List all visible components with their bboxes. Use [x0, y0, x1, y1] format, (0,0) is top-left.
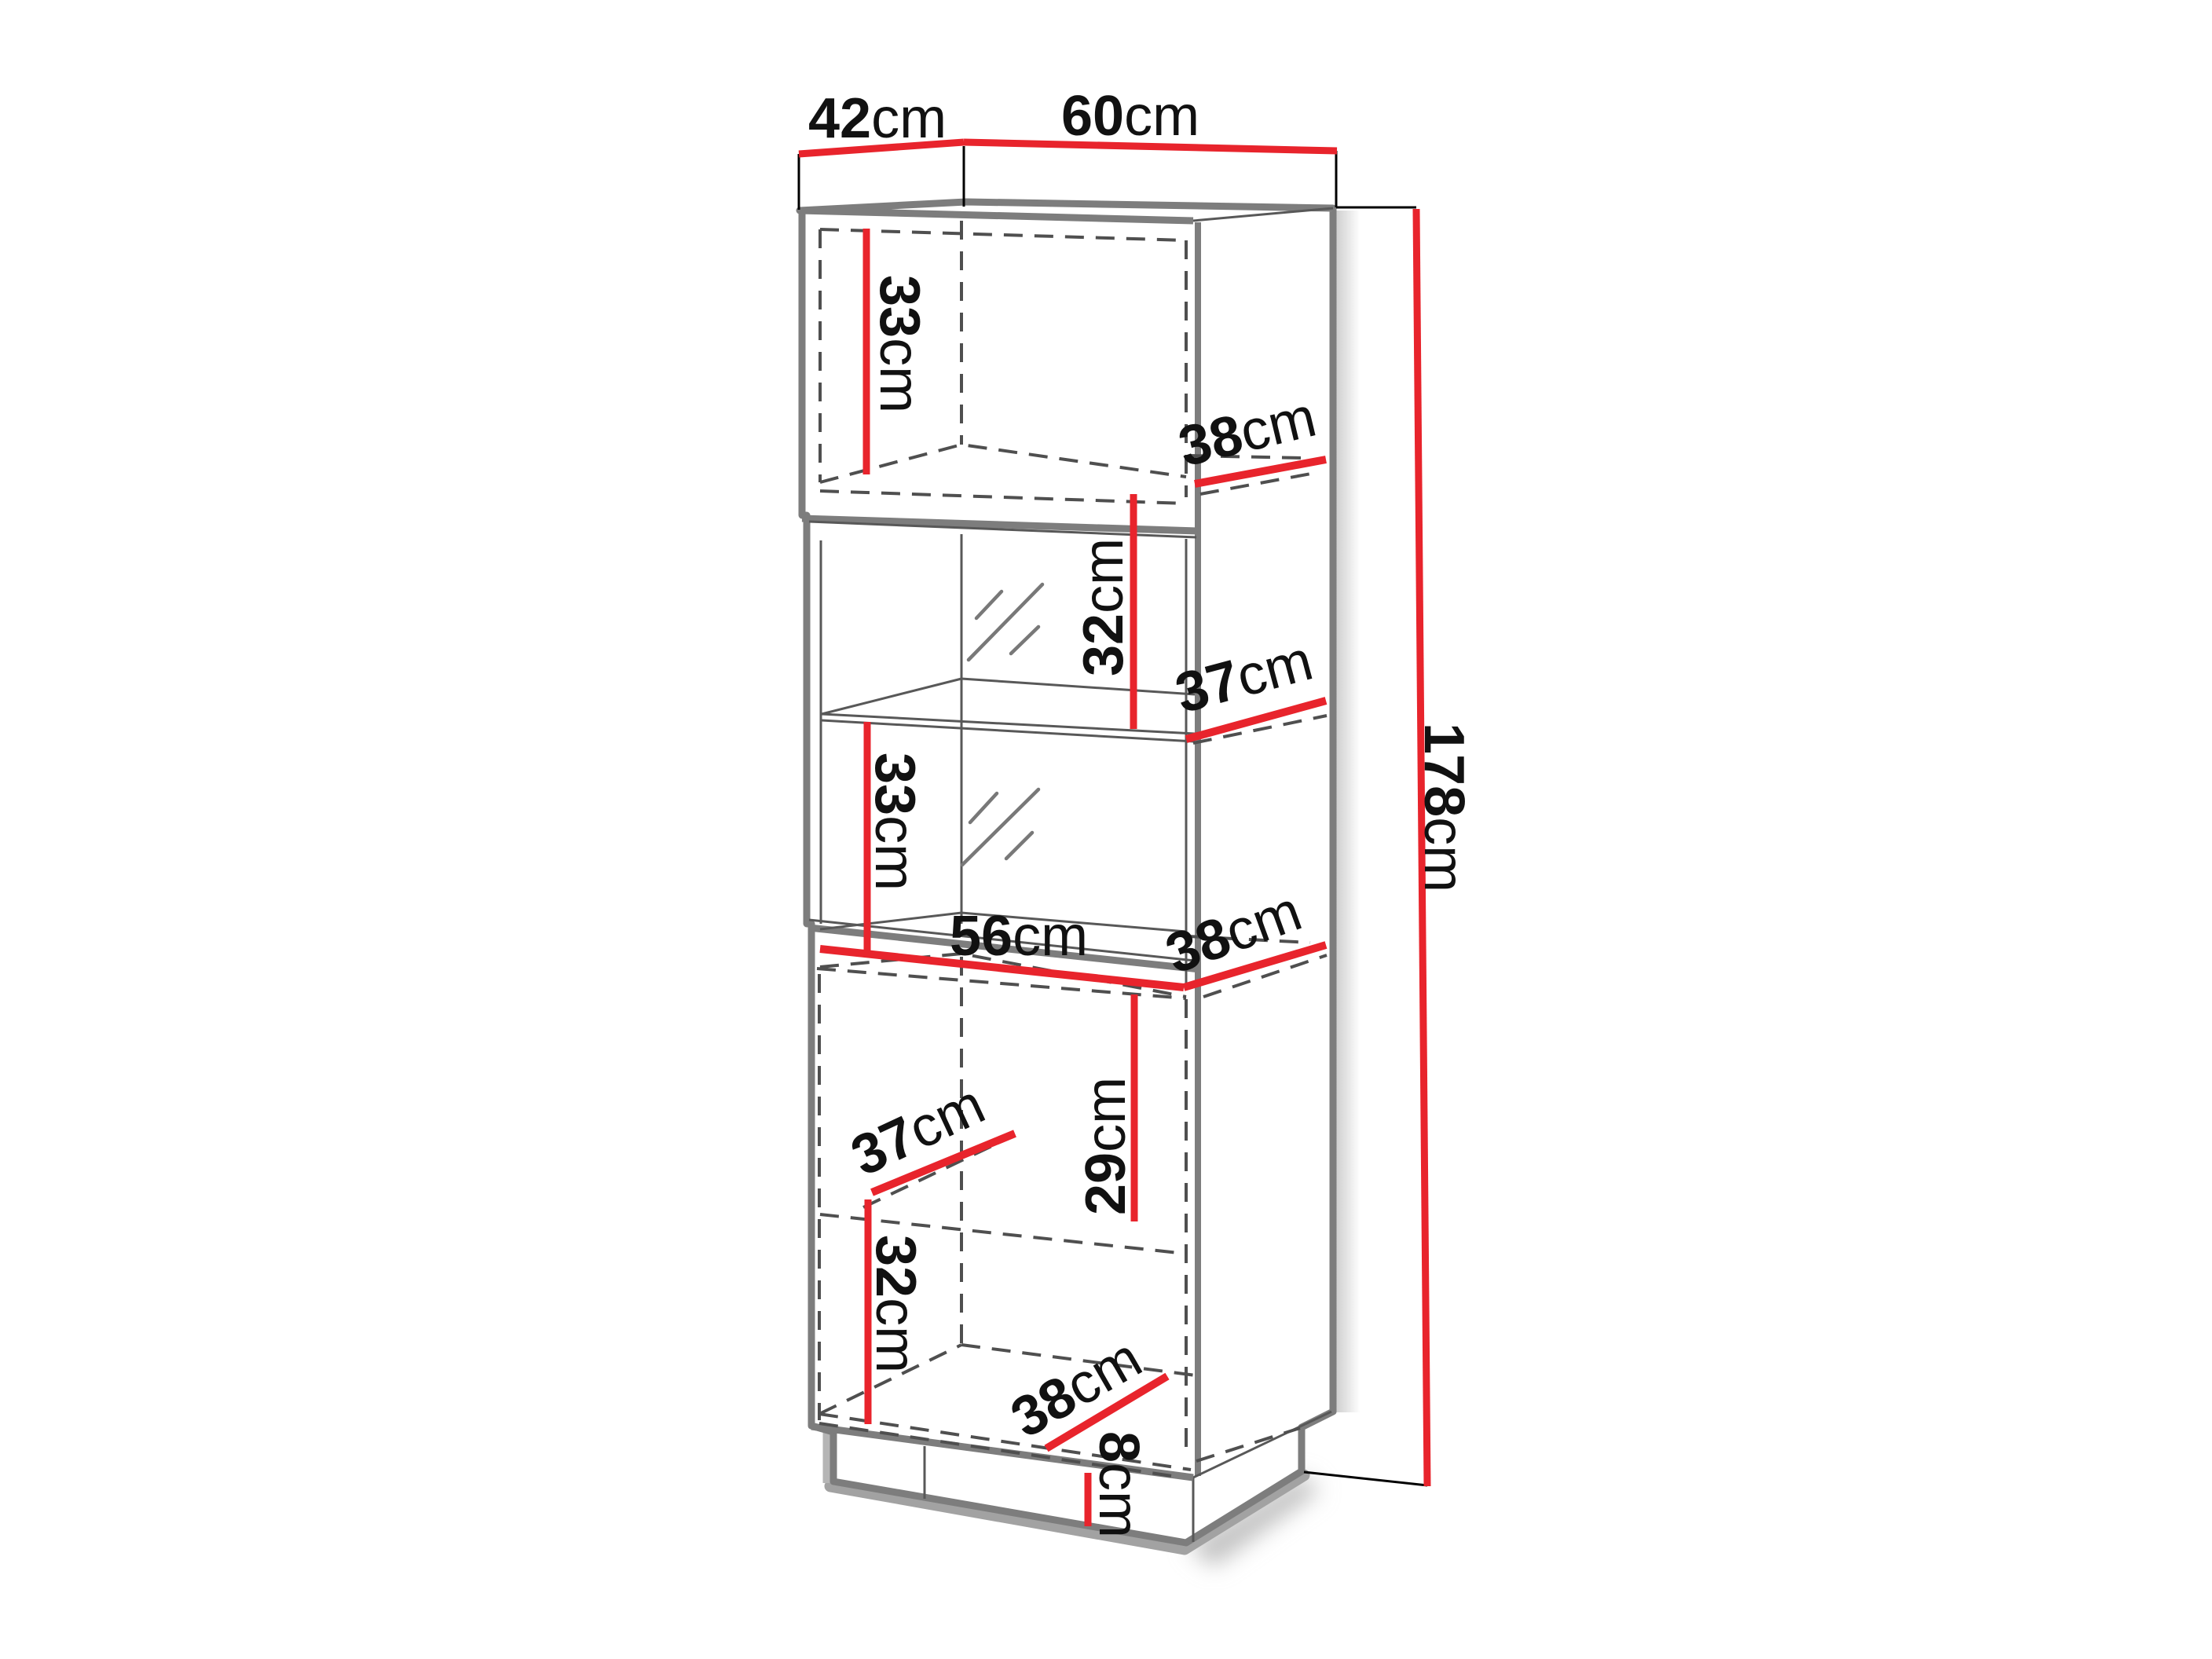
svg-text:56cm: 56cm — [950, 905, 1088, 968]
svg-text:32cm: 32cm — [864, 1235, 927, 1373]
svg-text:32cm: 32cm — [1072, 538, 1135, 676]
svg-text:33cm: 33cm — [868, 275, 931, 413]
svg-text:60cm: 60cm — [1061, 85, 1199, 148]
svg-text:29cm: 29cm — [1075, 1077, 1137, 1215]
svg-text:42cm: 42cm — [808, 87, 947, 150]
svg-text:178cm: 178cm — [1412, 723, 1475, 892]
svg-text:33cm: 33cm — [863, 753, 926, 891]
svg-text:8cm: 8cm — [1087, 1431, 1150, 1538]
